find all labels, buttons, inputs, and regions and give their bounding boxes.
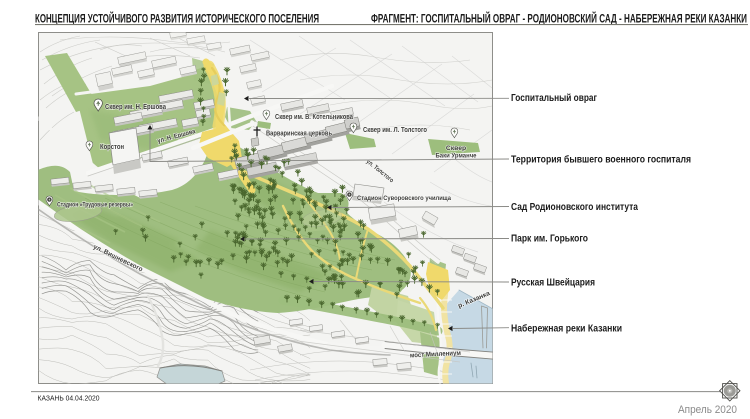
svg-text:Русская Швейцария: Русская Швейцария	[511, 278, 595, 289]
svg-text:ФРАГМЕНТ: ГОСПИТАЛЬНЫЙ ОВРАГ -: ФРАГМЕНТ: ГОСПИТАЛЬНЫЙ ОВРАГ - РОДИОНОВС…	[371, 12, 747, 25]
svg-text:Сад Родионовского института: Сад Родионовского института	[511, 202, 638, 213]
svg-text:Апрель 2020: Апрель 2020	[678, 404, 737, 416]
svg-text:КАЗАНЬ 04.04.2020: КАЗАНЬ 04.04.2020	[38, 396, 100, 403]
svg-text:Госпитальный овраг: Госпитальный овраг	[511, 93, 598, 104]
svg-text:Сквер: Сквер	[446, 145, 466, 152]
svg-text:Стадион Суворовского училища: Стадион Суворовского училища	[357, 195, 451, 202]
svg-text:Сквер им. В. Котельникова: Сквер им. В. Котельникова	[275, 114, 353, 121]
svg-text:Сквер им. Л. Толстого: Сквер им. Л. Толстого	[363, 127, 427, 134]
svg-text:Парк им. Горького: Парк им. Горького	[511, 234, 588, 245]
svg-text:Территория бывшего военного го: Территория бывшего военного госпиталя	[511, 154, 691, 166]
svg-text:Варваринская церковь: Варваринская церковь	[266, 131, 333, 138]
svg-text:Корстон: Корстон	[100, 142, 124, 151]
svg-text:Сквер им. Н. Ершова: Сквер им. Н. Ершова	[105, 102, 167, 111]
svg-text:Стадион «Трудовые резервы»: Стадион «Трудовые резервы»	[57, 202, 133, 209]
svg-text:Набережная реки Казанки: Набережная реки Казанки	[511, 323, 622, 335]
svg-text:КОНЦЕПЦИЯ УСТОЙЧИВОГО РАЗВИТИЯ: КОНЦЕПЦИЯ УСТОЙЧИВОГО РАЗВИТИЯ ИСТОРИЧЕС…	[35, 12, 319, 25]
svg-text:Баки Урманче: Баки Урманче	[436, 153, 477, 160]
